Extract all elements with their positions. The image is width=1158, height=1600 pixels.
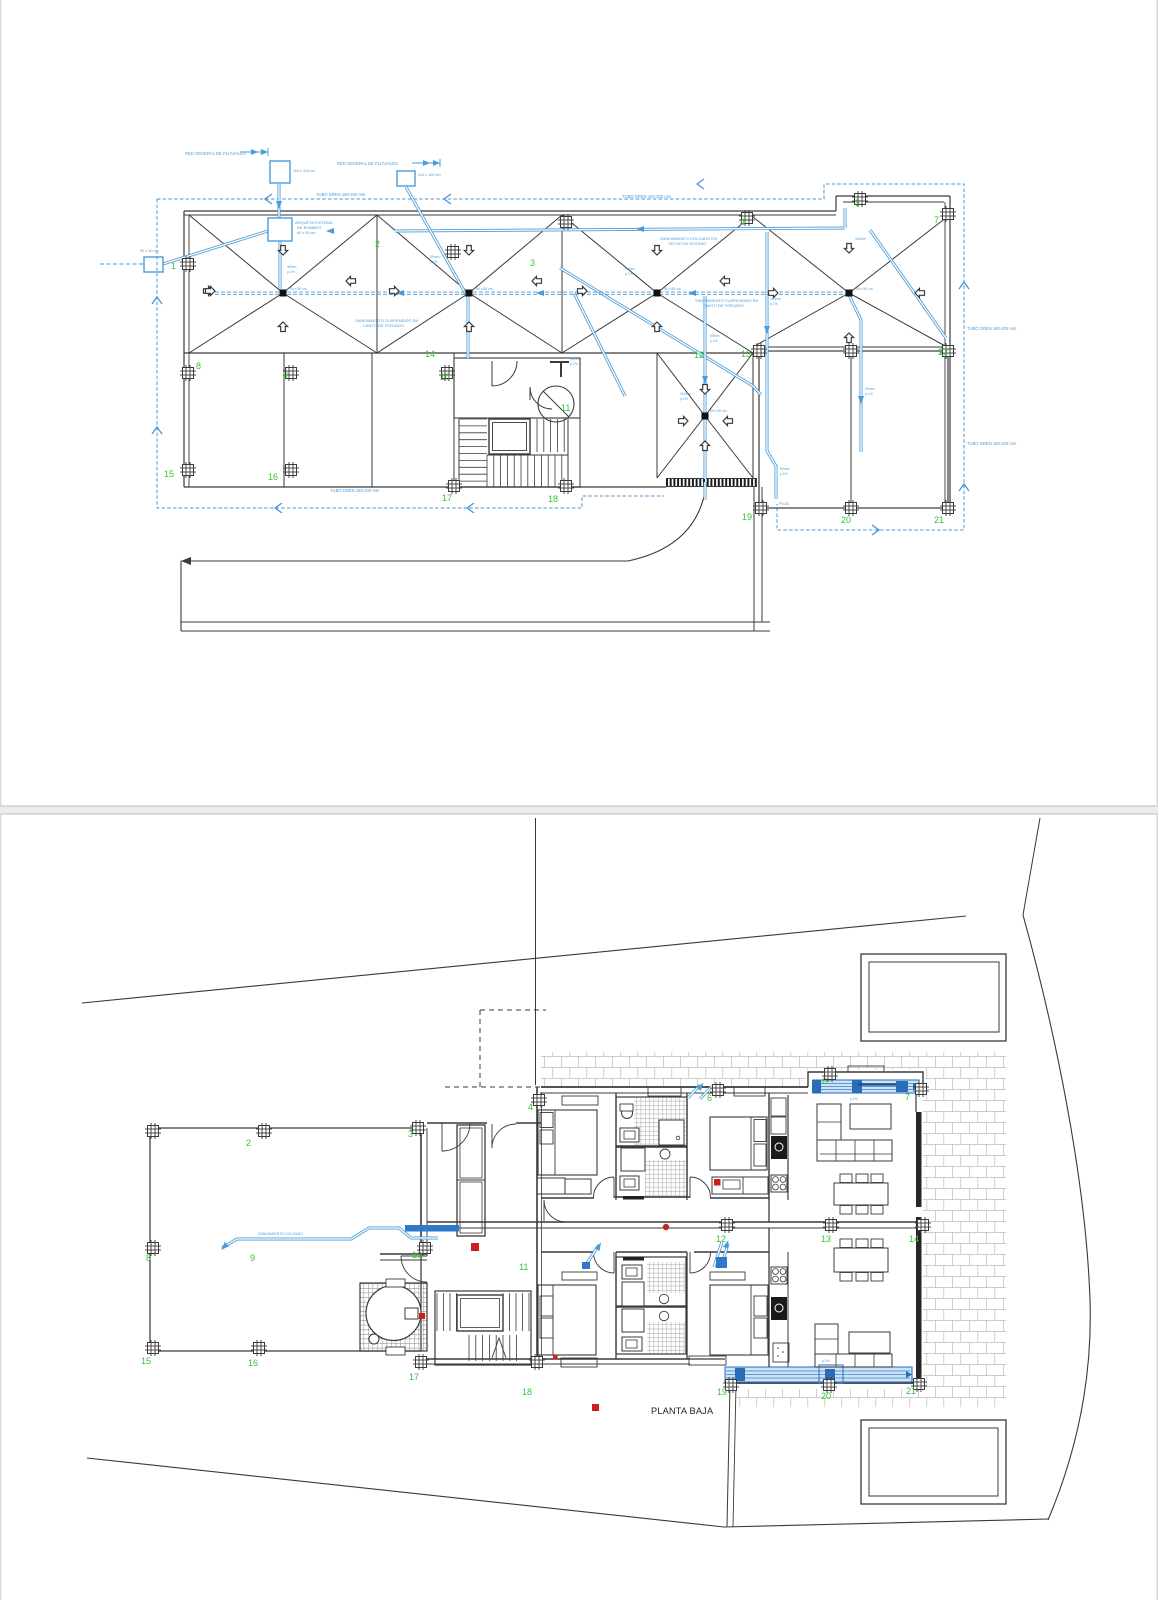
svg-text:3: 3 (408, 1129, 413, 1139)
svg-text:90mm: 90mm (780, 467, 790, 471)
svg-text:40mm: 40mm (287, 265, 297, 269)
svg-text:p.1%: p.1% (770, 302, 778, 306)
svg-text:7: 7 (905, 1092, 910, 1102)
svg-text:14: 14 (909, 1234, 919, 1244)
svg-text:12: 12 (716, 1234, 726, 1244)
svg-text:9: 9 (283, 370, 288, 380)
svg-text:2: 2 (246, 1138, 251, 1148)
svg-text:8: 8 (196, 361, 201, 371)
svg-text:p.1%: p.1% (780, 472, 788, 476)
svg-text:13: 13 (821, 1234, 831, 1244)
svg-text:TUBO DREN 160-200 mm: TUBO DREN 160-200 mm (967, 441, 1017, 446)
svg-text:2: 2 (375, 239, 380, 249)
svg-text:4: 4 (528, 1102, 533, 1112)
svg-text:16: 16 (268, 472, 278, 482)
svg-text:21: 21 (934, 515, 944, 525)
svg-text:10: 10 (412, 1250, 422, 1260)
svg-text:90mm: 90mm (570, 357, 580, 361)
svg-text:110 x 100 cm: 110 x 100 cm (418, 173, 441, 177)
svg-text:6: 6 (822, 1076, 827, 1086)
svg-text:4: 4 (740, 217, 745, 227)
svg-text:PV-65: PV-65 (779, 502, 789, 506)
svg-text:PLANTA BAJA: PLANTA BAJA (651, 1406, 714, 1416)
svg-text:14: 14 (425, 349, 435, 359)
svg-text:50 x 50 cm: 50 x 50 cm (664, 287, 681, 291)
svg-text:DE BOMBEO: DE BOMBEO (297, 225, 321, 230)
svg-text:15: 15 (141, 1356, 151, 1366)
svg-text:15: 15 (164, 469, 174, 479)
svg-text:19: 19 (742, 512, 752, 522)
svg-text:TUBO DREN 160-200 mm: TUBO DREN 160-200 mm (622, 194, 672, 199)
svg-text:50mm: 50mm (865, 387, 875, 391)
svg-text:13: 13 (741, 349, 751, 359)
svg-text:3: 3 (530, 258, 535, 268)
svg-text:50mm: 50mm (430, 255, 440, 259)
svg-text:RED GENERAL DE PLUVIALES: RED GENERAL DE PLUVIALES (185, 151, 246, 156)
svg-text:TUBO DREN 160-200 mm: TUBO DREN 160-200 mm (316, 192, 366, 197)
svg-text:1: 1 (171, 261, 176, 271)
svg-text:TUBO DREN 160-200 mm: TUBO DREN 160-200 mm (967, 326, 1017, 331)
svg-text:17: 17 (442, 493, 452, 503)
svg-text:20: 20 (841, 515, 851, 525)
svg-text:11: 11 (561, 403, 570, 413)
svg-text:60 x 50 cm: 60 x 50 cm (297, 231, 316, 235)
svg-text:RED GENERAL DE PLUVIALES: RED GENERAL DE PLUVIALES (337, 161, 398, 166)
svg-text:12: 12 (694, 350, 704, 360)
svg-text:p.1%: p.1% (287, 270, 295, 274)
svg-text:17: 17 (409, 1372, 419, 1382)
svg-text:22: 22 (938, 347, 948, 357)
svg-text:20: 20 (821, 1391, 831, 1401)
svg-text:110mm: 110mm (855, 237, 866, 241)
svg-text:9: 9 (250, 1253, 255, 1263)
svg-text:SANEAMIENTO COLGADO: SANEAMIENTO COLGADO (258, 1232, 303, 1236)
svg-text:18: 18 (522, 1387, 532, 1397)
svg-text:8: 8 (146, 1253, 151, 1263)
svg-text:TECHO DE SOTANO: TECHO DE SOTANO (668, 241, 706, 246)
svg-text:11: 11 (519, 1262, 528, 1272)
svg-text:90 x 50 cm: 90 x 50 cm (140, 249, 159, 253)
svg-text:CANTO DE FORJADO: CANTO DE FORJADO (703, 303, 744, 308)
svg-text:16: 16 (248, 1358, 258, 1368)
svg-text:p.1%: p.1% (680, 397, 688, 401)
svg-text:50 x 50 cm: 50 x 50 cm (290, 287, 307, 291)
svg-text:5: 5 (855, 198, 860, 208)
svg-text:p.1%: p.1% (430, 260, 438, 264)
svg-text:50mm: 50mm (710, 334, 720, 338)
svg-text:50 x 50 cm: 50 x 50 cm (476, 287, 493, 291)
svg-text:p.1%: p.1% (865, 392, 873, 396)
svg-text:110 x 110 cm: 110 x 110 cm (293, 169, 315, 173)
svg-text:110mm: 110mm (770, 297, 781, 301)
svg-text:p.1%: p.1% (570, 362, 578, 366)
svg-text:7: 7 (934, 215, 939, 225)
svg-text:6: 6 (707, 1093, 712, 1103)
svg-text:10: 10 (440, 372, 450, 382)
svg-text:p.1%: p.1% (822, 1359, 830, 1363)
svg-text:18: 18 (548, 494, 558, 504)
svg-text:110mm: 110mm (680, 392, 691, 396)
svg-text:p.1%: p.1% (710, 339, 718, 343)
svg-text:19: 19 (717, 1387, 727, 1397)
svg-text:50 x 50 cm: 50 x 50 cm (856, 287, 873, 291)
svg-text:90mm: 90mm (625, 267, 635, 271)
svg-text:TUBO DREN 160-200 mm: TUBO DREN 160-200 mm (330, 488, 380, 493)
svg-text:21: 21 (906, 1386, 916, 1396)
svg-text:p.1%: p.1% (625, 272, 633, 276)
svg-text:CANTO DE FORJADO: CANTO DE FORJADO (363, 323, 404, 328)
svg-text:50 x 50 cm: 50 x 50 cm (710, 409, 727, 413)
svg-text:p.1%: p.1% (850, 1097, 858, 1101)
